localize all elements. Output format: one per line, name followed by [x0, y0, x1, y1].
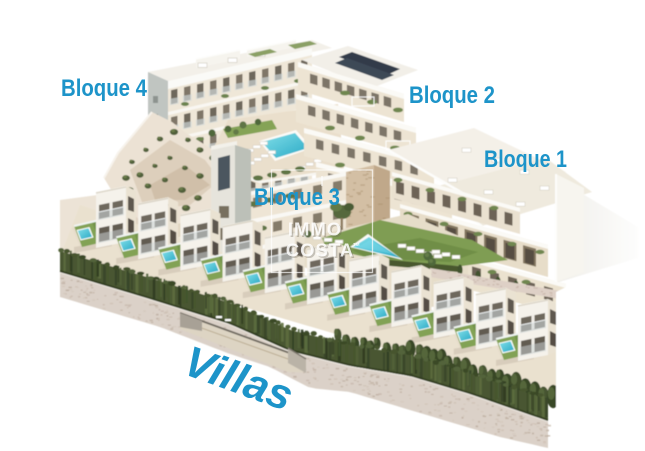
svg-text:Bloque 3: Bloque 3 — [254, 184, 340, 211]
svg-text:COSTA: COSTA — [286, 239, 354, 260]
svg-text:TM: TM — [353, 242, 360, 247]
svg-text:IMMO: IMMO — [288, 218, 342, 239]
svg-text:Bloque 4: Bloque 4 — [61, 75, 147, 102]
svg-text:Bloque 2: Bloque 2 — [409, 82, 495, 109]
svg-text:Bloque 1: Bloque 1 — [484, 146, 567, 173]
